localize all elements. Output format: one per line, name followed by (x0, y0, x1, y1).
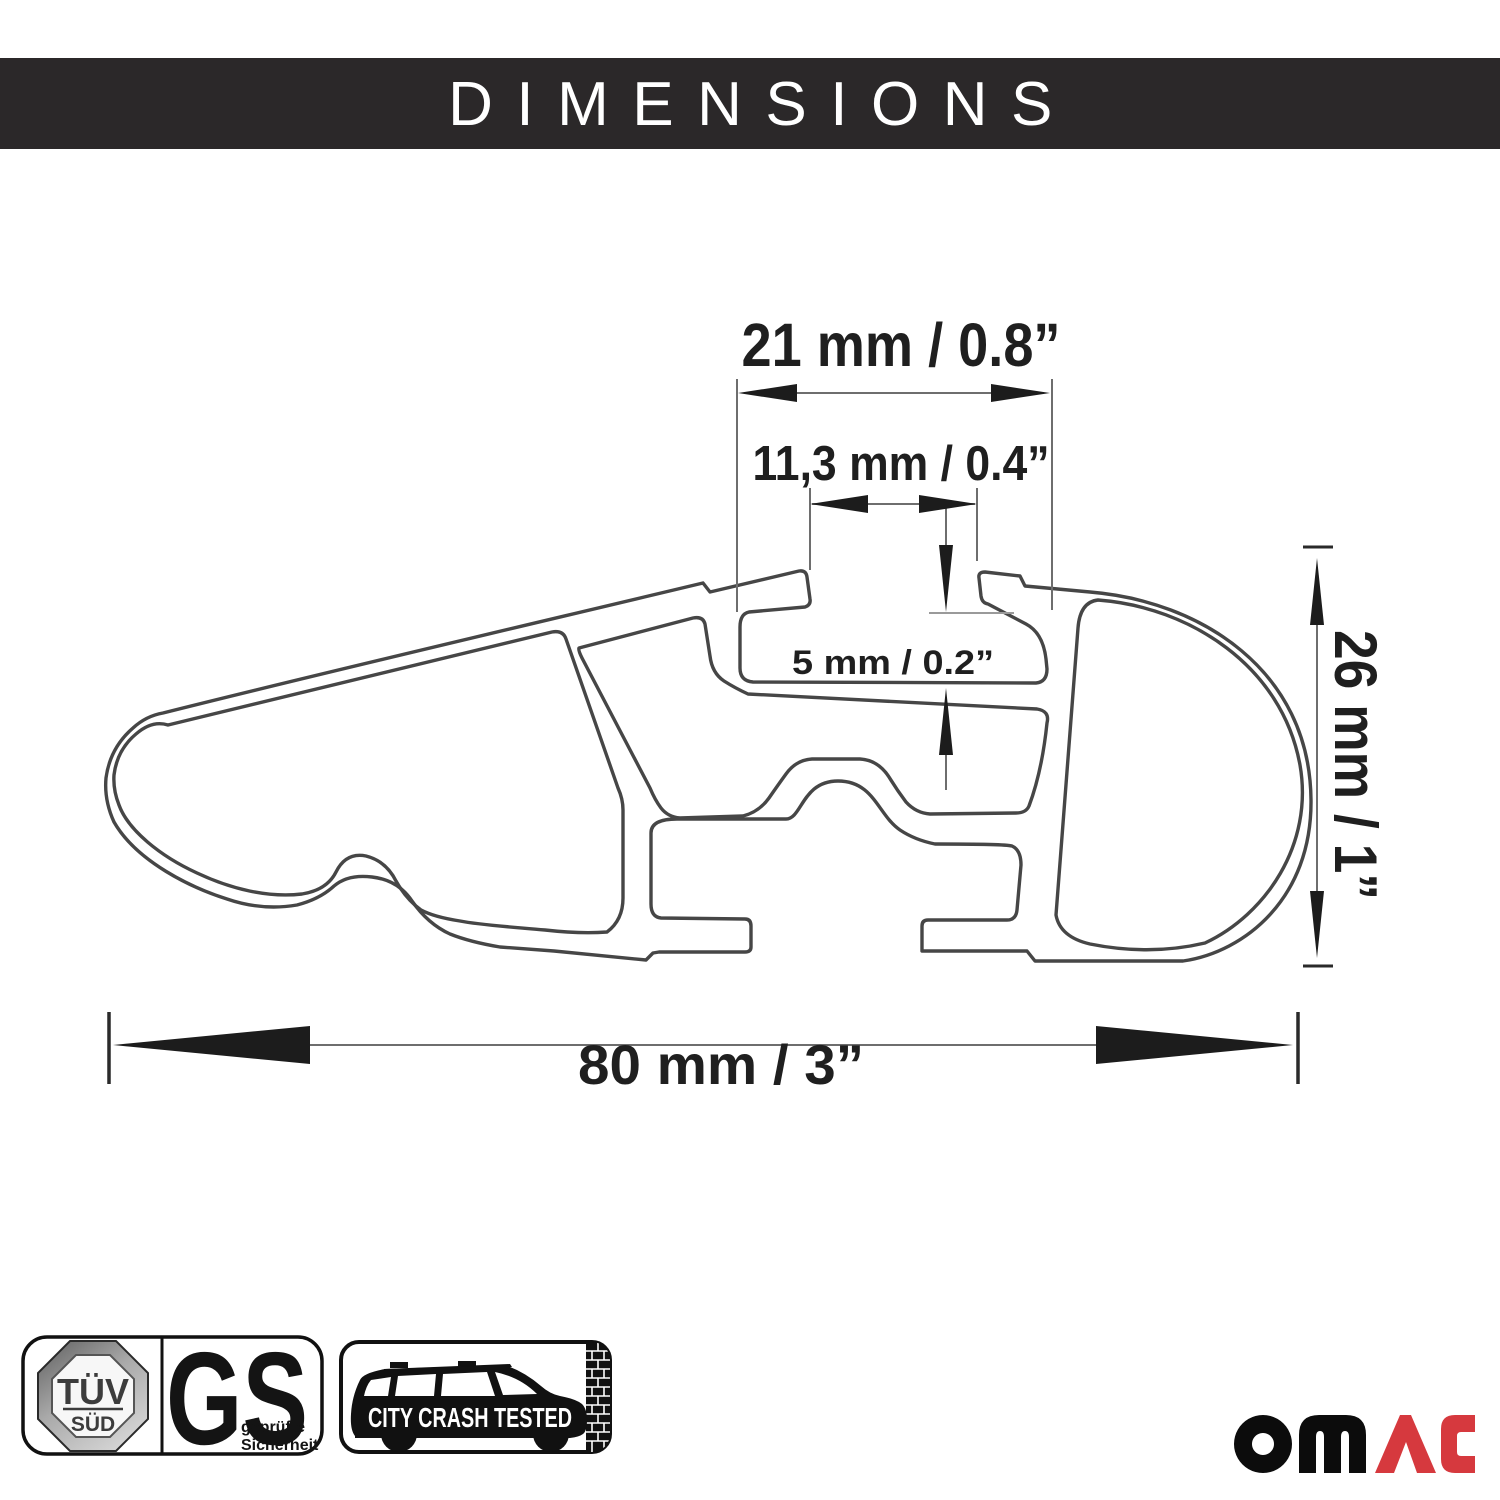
svg-text:TÜV: TÜV (57, 1371, 129, 1412)
svg-text:11,3 mm / 0.4”: 11,3 mm / 0.4” (753, 437, 1050, 491)
svg-text:SÜD: SÜD (71, 1413, 115, 1436)
svg-text:DIMENSIONS: DIMENSIONS (448, 70, 1076, 139)
svg-text:5 mm / 0.2”: 5 mm / 0.2” (792, 644, 994, 682)
svg-text:26 mm / 1”: 26 mm / 1” (1322, 630, 1389, 900)
svg-text:Sicherheit: Sicherheit (241, 1437, 319, 1454)
svg-text:CITY CRASH TESTED: CITY CRASH TESTED (368, 1402, 572, 1433)
svg-text:21 mm / 0.8”: 21 mm / 0.8” (742, 311, 1061, 379)
svg-text:80 mm / 3”: 80 mm / 3” (578, 1033, 864, 1096)
svg-text:geprüfte: geprüfte (241, 1419, 305, 1436)
